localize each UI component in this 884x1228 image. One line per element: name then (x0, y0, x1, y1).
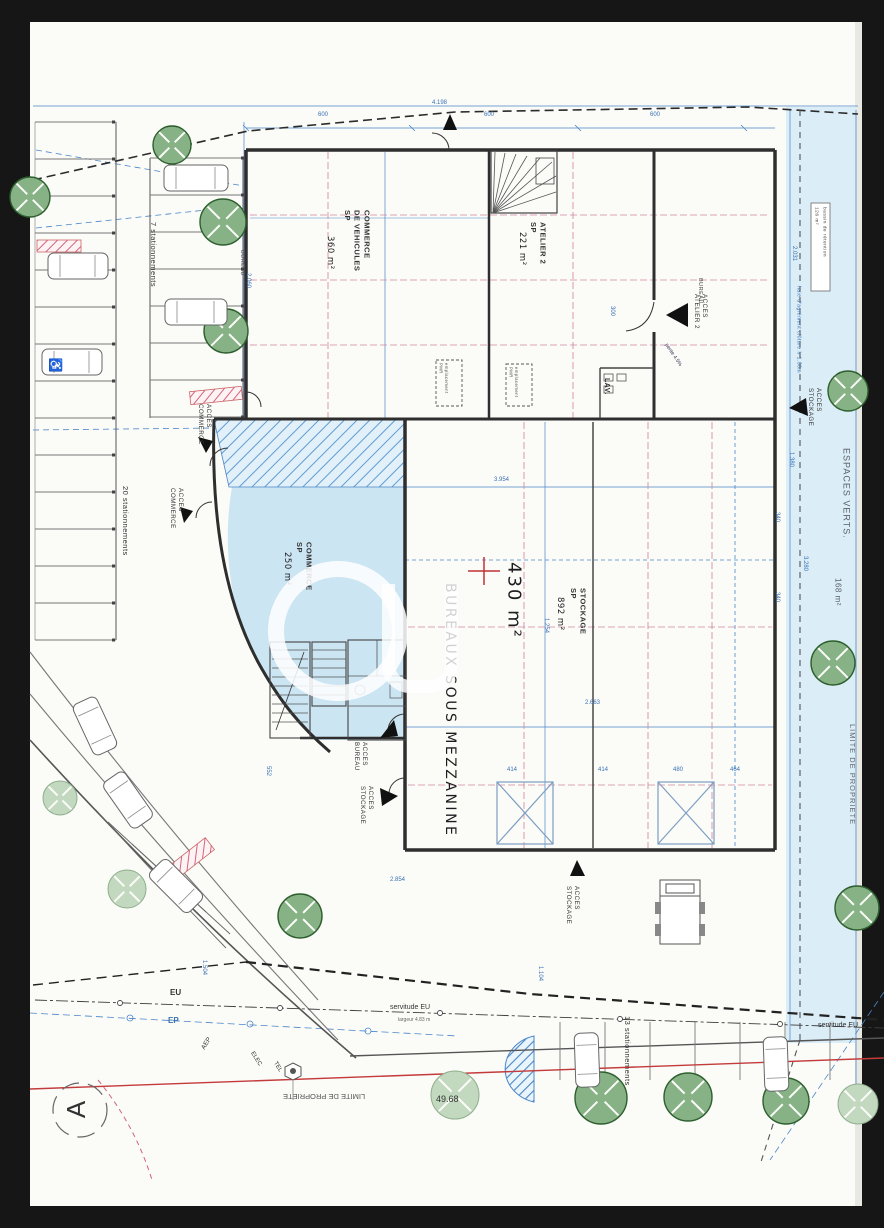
scanned-plan-viewer: COMMERCE DE VEHICULES SP 360 m² ATELIER … (0, 0, 884, 1228)
car-symbol (48, 253, 108, 279)
car-symbol (763, 1037, 789, 1092)
tree-symbol (811, 641, 855, 685)
tree-symbol (431, 1071, 479, 1119)
tree-symbol (664, 1073, 712, 1121)
pedestrian-hatch (37, 240, 81, 252)
truck (655, 880, 705, 944)
site-plan-drawing (0, 0, 884, 1228)
canopy-hatch (214, 420, 405, 487)
tree-symbol (278, 894, 322, 938)
car-symbol (574, 1033, 600, 1088)
tree-symbol (200, 199, 246, 245)
tree-symbol (43, 781, 77, 815)
paper-sheet (30, 22, 862, 1206)
car-symbol (42, 349, 102, 375)
car-symbol (164, 165, 228, 191)
car-symbol (165, 299, 227, 325)
tree-symbol (828, 371, 868, 411)
tree-symbol (835, 886, 879, 930)
tree-symbol (108, 870, 146, 908)
tree-symbol (153, 126, 191, 164)
tree-symbol (10, 177, 50, 217)
tree-symbol (838, 1084, 878, 1124)
